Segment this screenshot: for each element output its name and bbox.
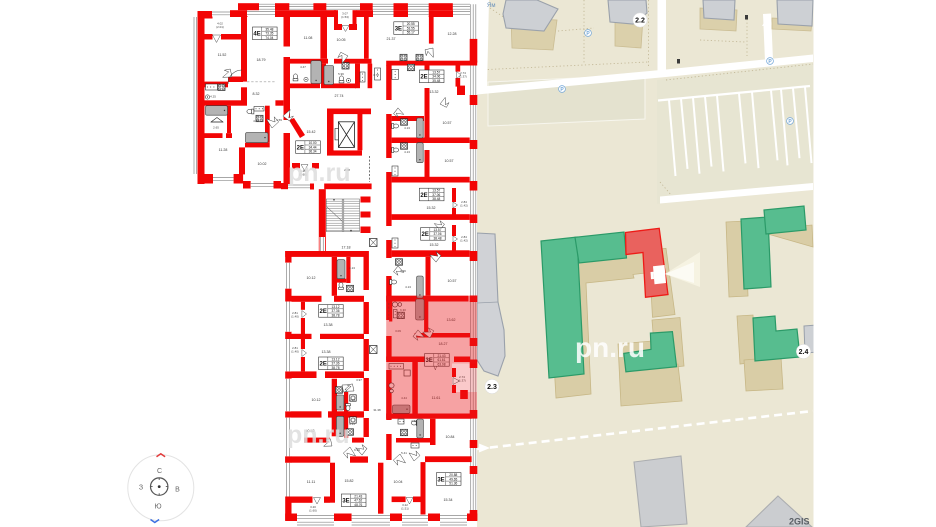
svg-text:10.05: 10.05 <box>337 38 346 42</box>
svg-text:4.47: 4.47 <box>300 65 306 69</box>
svg-text:10.04: 10.04 <box>394 480 403 484</box>
svg-text:38.78: 38.78 <box>332 366 340 370</box>
svg-text:10.57: 10.57 <box>443 121 452 125</box>
svg-text:10.12: 10.12 <box>312 398 321 402</box>
svg-text:17.18: 17.18 <box>342 246 351 250</box>
svg-text:4.13: 4.13 <box>349 398 355 402</box>
svg-text:13.38: 13.38 <box>322 350 331 354</box>
svg-text:21.37: 21.37 <box>387 37 396 41</box>
svg-text:15.82: 15.82 <box>345 479 354 483</box>
svg-text:3Е: 3Е <box>395 26 402 32</box>
svg-text:10.12: 10.12 <box>307 276 316 280</box>
svg-text:(1.37): (1.37) <box>459 74 467 78</box>
svg-text:2Е: 2Е <box>320 309 327 315</box>
svg-text:Ю: Ю <box>154 504 161 511</box>
svg-text:11.28: 11.28 <box>219 148 228 152</box>
svg-text:2Е: 2Е <box>297 145 304 151</box>
svg-text:2.65: 2.65 <box>213 126 219 130</box>
svg-text:(2.01): (2.01) <box>216 25 224 29</box>
svg-text:15.32: 15.32 <box>427 206 436 210</box>
svg-text:35.48: 35.48 <box>432 79 440 83</box>
svg-text:2Е: 2Е <box>320 362 327 368</box>
svg-text:48.76: 48.76 <box>354 503 362 507</box>
svg-text:В: В <box>175 487 180 494</box>
svg-text:(1.42): (1.42) <box>460 203 468 207</box>
svg-text:10.57: 10.57 <box>448 279 457 283</box>
svg-text:2.3: 2.3 <box>487 384 497 391</box>
svg-text:10.84: 10.84 <box>446 435 455 439</box>
svg-text:38.48: 38.48 <box>434 236 442 240</box>
svg-text:4.13: 4.13 <box>349 266 355 270</box>
svg-text:10.02: 10.02 <box>258 162 267 166</box>
svg-text:13.38: 13.38 <box>324 323 333 327</box>
svg-text:4Е: 4Е <box>253 32 260 38</box>
svg-text:pn.ru: pn.ru <box>288 159 351 187</box>
svg-text:15.42: 15.42 <box>307 130 316 134</box>
svg-text:4.13: 4.13 <box>404 150 410 154</box>
svg-text:С: С <box>157 468 162 475</box>
svg-text:11.52: 11.52 <box>218 53 227 57</box>
svg-text:(1.60): (1.60) <box>309 508 317 512</box>
svg-text:10.57: 10.57 <box>445 159 454 163</box>
svg-text:2Е: 2Е <box>420 193 427 199</box>
svg-text:11.11: 11.11 <box>307 480 315 484</box>
svg-text:2Е: 2Е <box>422 232 429 238</box>
svg-text:4.22: 4.22 <box>411 419 417 423</box>
svg-text:38.48: 38.48 <box>432 197 440 201</box>
svg-text:12.28: 12.28 <box>448 32 457 36</box>
svg-text:3.96: 3.96 <box>400 269 406 273</box>
svg-text:2.4: 2.4 <box>799 349 809 356</box>
svg-text:4.13: 4.13 <box>404 126 410 130</box>
svg-text:(1.40): (1.40) <box>291 314 299 318</box>
svg-text:(1.51): (1.51) <box>401 506 409 510</box>
svg-text:3Е: 3Е <box>437 477 444 483</box>
svg-text:5.96: 5.96 <box>338 72 344 76</box>
svg-text:4.59: 4.59 <box>276 118 282 122</box>
svg-text:38.78: 38.78 <box>332 313 340 317</box>
svg-text:27.74: 27.74 <box>335 94 344 98</box>
svg-text:15.32: 15.32 <box>430 243 439 247</box>
svg-text:55.17: 55.17 <box>407 31 415 35</box>
svg-text:4.25: 4.25 <box>210 95 216 99</box>
svg-text:11.08: 11.08 <box>304 36 313 40</box>
svg-text:Ям: Ям <box>487 3 495 9</box>
svg-text:36.34: 36.34 <box>309 150 317 154</box>
svg-text:74.04: 74.04 <box>265 36 273 40</box>
svg-text:2GIS: 2GIS <box>789 517 810 527</box>
svg-text:pn.ru: pn.ru <box>575 332 645 363</box>
svg-text:pn.ru: pn.ru <box>287 421 350 449</box>
svg-text:8.32: 8.32 <box>253 92 260 96</box>
svg-text:3.97: 3.97 <box>356 378 362 382</box>
svg-text:15.34: 15.34 <box>444 498 453 502</box>
svg-text:(1.42): (1.42) <box>460 238 468 242</box>
svg-text:31.38: 31.38 <box>373 408 381 412</box>
svg-text:18.79: 18.79 <box>257 58 266 62</box>
svg-text:2Е: 2Е <box>420 75 427 81</box>
svg-text:З: З <box>139 485 143 492</box>
svg-text:13.32: 13.32 <box>430 90 439 94</box>
svg-text:3.78: 3.78 <box>373 73 379 77</box>
svg-text:6.19: 6.19 <box>354 448 360 452</box>
svg-text:5.41: 5.41 <box>401 451 407 455</box>
svg-text:3Е: 3Е <box>342 499 349 505</box>
svg-text:51.36: 51.36 <box>449 482 457 486</box>
svg-text:(1.40): (1.40) <box>291 349 299 353</box>
svg-text:4.21: 4.21 <box>253 119 259 123</box>
svg-text:4.13: 4.13 <box>349 422 355 426</box>
svg-text:(1.53): (1.53) <box>341 15 349 19</box>
svg-text:4.13: 4.13 <box>405 285 411 289</box>
svg-text:2.2: 2.2 <box>635 17 645 24</box>
